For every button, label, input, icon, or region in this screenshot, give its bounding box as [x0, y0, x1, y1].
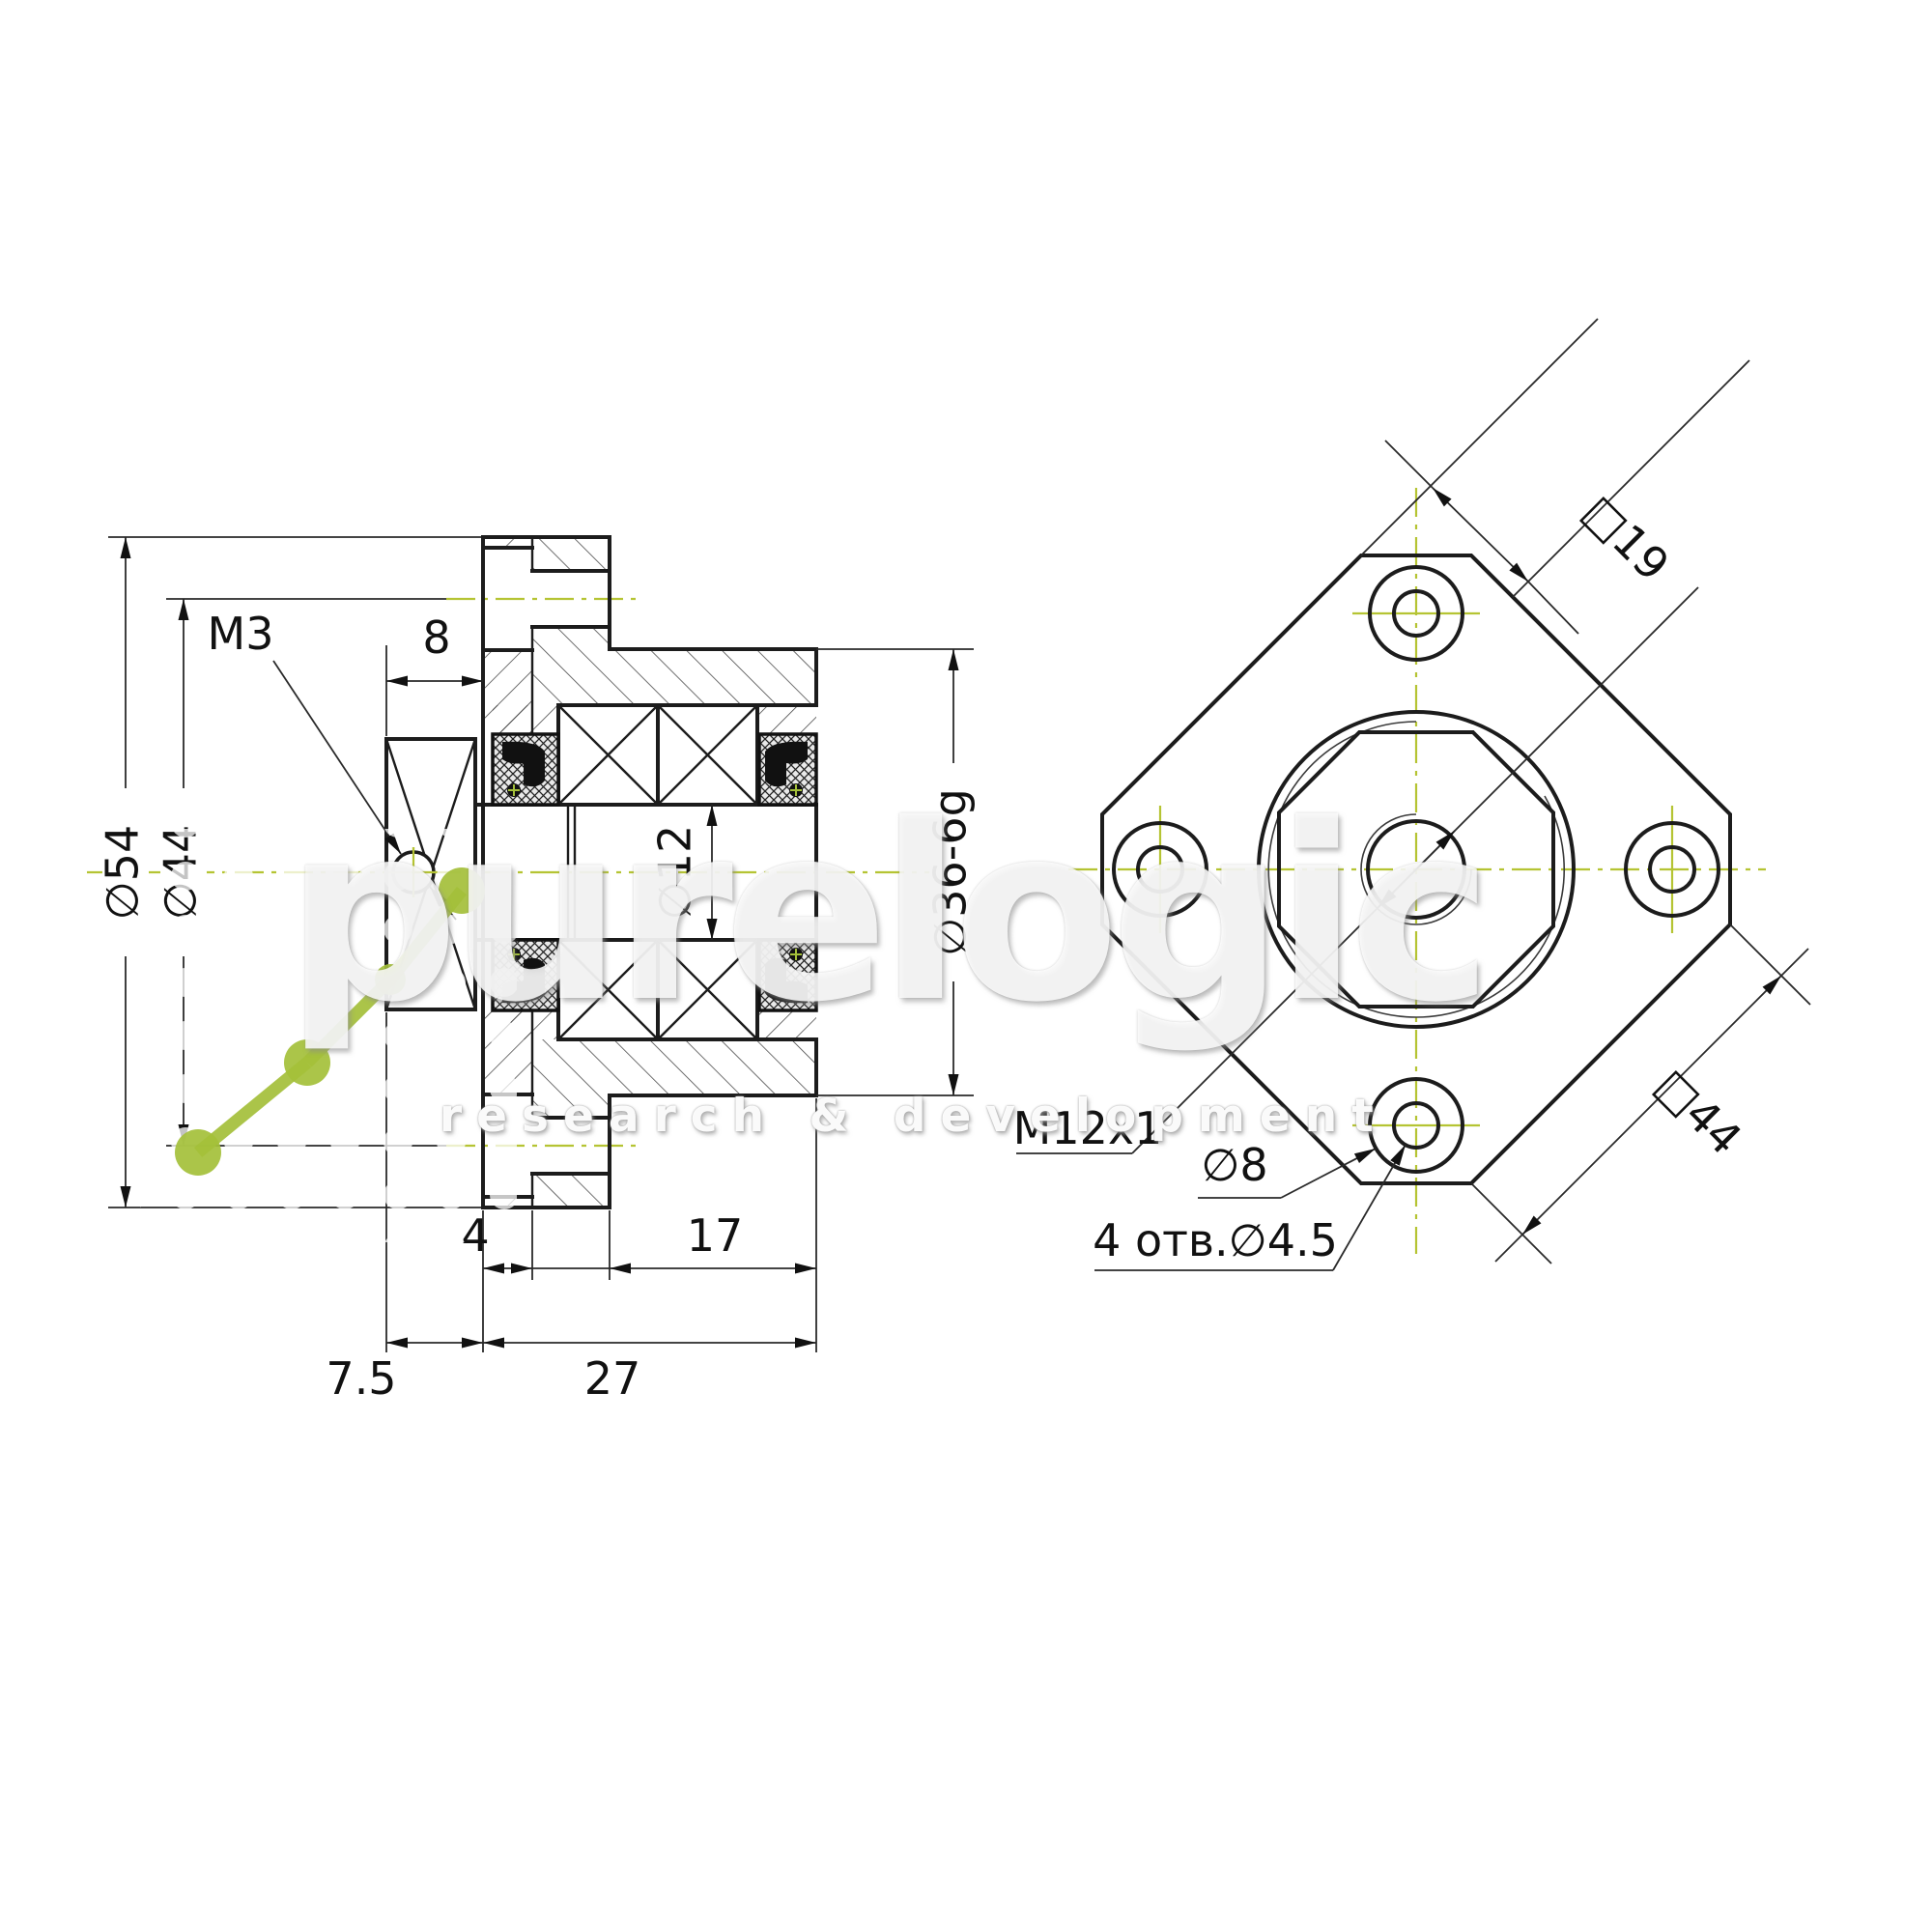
dim-d8: ∅8: [1201, 1139, 1267, 1191]
dim-m3: M3: [208, 608, 274, 660]
seal-bottom-right: [759, 940, 816, 1010]
dim-sq19: □19: [1573, 485, 1679, 591]
seal-top-right: [759, 734, 816, 805]
dim-d36: ∅36-6g: [924, 788, 977, 956]
bearing-bottom-left: [558, 940, 658, 1039]
dim-m12: M12x1: [1013, 1102, 1163, 1154]
bearing-top-right: [658, 705, 757, 805]
seal-top-left: [493, 734, 558, 805]
dim-len27: 27: [584, 1352, 641, 1405]
dim-d54: ∅54: [97, 825, 149, 921]
dim-len8: 8: [422, 611, 450, 664]
dim-sq44: □44: [1645, 1059, 1751, 1165]
front-view: M12x1 ∅8 4 отв.∅4.5 □19 □44: [1013, 319, 1810, 1270]
section-view: ∅54 ∅44 8 M3 ∅12 ∅36-6g: [87, 537, 978, 1405]
dimensions-front: M12x1 ∅8 4 отв.∅4.5 □19 □44: [1013, 319, 1810, 1270]
dim-len17: 17: [687, 1209, 744, 1262]
locknut: [386, 739, 475, 1009]
drawing-canvas: ∅54 ∅44 8 M3 ∅12 ∅36-6g: [0, 0, 1932, 1932]
dim-len75: 7.5: [326, 1352, 396, 1405]
dim-len4: 4: [461, 1209, 489, 1262]
centerlines-front: [1068, 488, 1766, 1254]
dim-holes: 4 отв.∅4.5: [1093, 1214, 1338, 1266]
cad-drawing: ∅54 ∅44 8 M3 ∅12 ∅36-6g: [0, 0, 1932, 1932]
seal-bottom-left: [493, 940, 558, 1010]
dim-d44: ∅44: [155, 825, 207, 921]
bearing-bottom-right: [658, 940, 757, 1039]
dim-d12: ∅12: [649, 825, 701, 921]
bearing-top-left: [558, 705, 658, 805]
